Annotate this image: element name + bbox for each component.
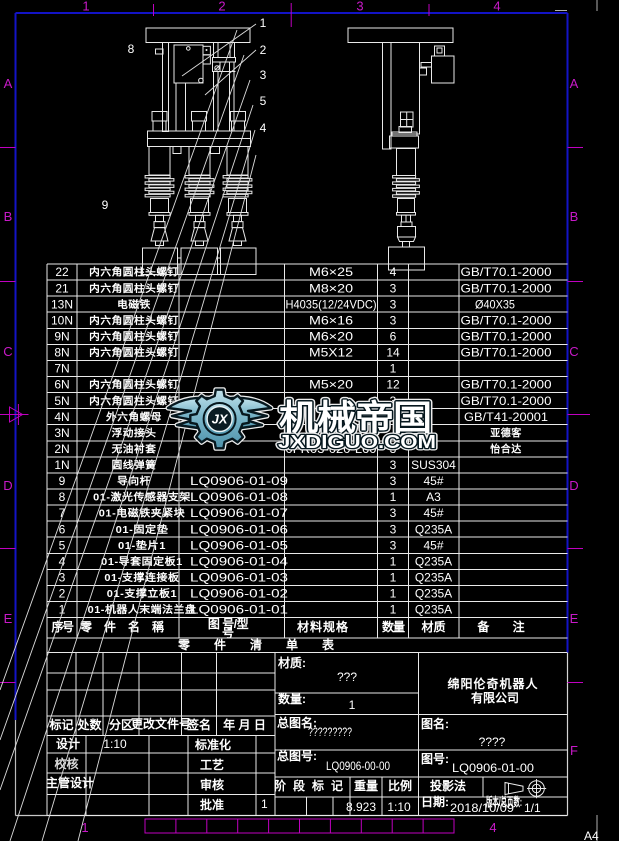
svg-text:序号: 序号	[51, 619, 74, 634]
svg-text:LQ0906-00-00: LQ0906-00-00	[326, 759, 390, 773]
svg-text:工艺: 工艺	[200, 757, 224, 772]
svg-text:浮动接头: 浮动接头	[112, 426, 157, 439]
svg-text:SUS304: SUS304	[411, 458, 456, 472]
svg-text:设计: 设计	[56, 736, 80, 751]
svg-text:D: D	[3, 478, 12, 493]
svg-text:图名:: 图名:	[421, 716, 449, 731]
svg-text:怡合达: 怡合达	[490, 443, 522, 456]
svg-text:零件名稱: 零件名稱	[79, 619, 176, 634]
svg-text:1:10: 1:10	[103, 737, 127, 751]
svg-text:B: B	[4, 209, 13, 224]
svg-text:LQ0906-01-07: LQ0906-01-07	[190, 506, 288, 520]
svg-text:45#: 45#	[423, 474, 443, 488]
svg-text:比例: 比例	[388, 778, 412, 793]
svg-text:Q235A: Q235A	[415, 522, 452, 536]
svg-text:3: 3	[260, 68, 267, 82]
svg-text:Q235A: Q235A	[415, 555, 452, 569]
svg-text:9N: 9N	[54, 330, 69, 344]
svg-text:12: 12	[386, 378, 400, 392]
svg-text:3: 3	[390, 522, 397, 536]
svg-text:4: 4	[390, 265, 397, 279]
svg-text:4: 4	[489, 820, 496, 835]
svg-text:5: 5	[260, 94, 267, 108]
svg-text:2: 2	[260, 43, 267, 57]
svg-text:2: 2	[59, 587, 66, 601]
svg-text:01-支撑连接板: 01-支撑连接板	[104, 571, 180, 584]
svg-text:13N: 13N	[51, 297, 73, 311]
svg-text:6N: 6N	[54, 378, 69, 392]
svg-text:3: 3	[390, 297, 397, 311]
svg-text:21: 21	[55, 281, 69, 295]
svg-text:1: 1	[390, 490, 397, 504]
svg-text:Ø40X35: Ø40X35	[475, 297, 515, 311]
svg-text:4: 4	[260, 121, 267, 135]
svg-text:M5×20: M5×20	[309, 378, 353, 392]
svg-text:01-机器人末端法兰盘: 01-机器人末端法兰盘	[88, 603, 197, 616]
svg-text:1: 1	[390, 362, 397, 376]
svg-text:4N: 4N	[54, 410, 69, 424]
svg-text:01-激光传感器支架: 01-激光传感器支架	[93, 491, 191, 504]
svg-text:F: F	[570, 743, 578, 758]
svg-text:01-电磁铁夹紧块: 01-电磁铁夹紧块	[99, 507, 186, 520]
svg-text:14: 14	[386, 346, 400, 360]
svg-text:2: 2	[218, 0, 225, 14]
svg-text:E: E	[570, 611, 579, 626]
svg-text:1:10: 1:10	[387, 800, 411, 814]
svg-text:M6×20: M6×20	[309, 330, 353, 344]
svg-text:3: 3	[390, 281, 397, 295]
svg-text:8: 8	[59, 490, 66, 504]
svg-text:8: 8	[128, 42, 135, 56]
svg-text:9: 9	[102, 198, 109, 212]
svg-text:M6×25: M6×25	[309, 265, 353, 279]
svg-text:1: 1	[260, 16, 267, 30]
svg-text:JX: JX	[212, 412, 229, 427]
svg-text:M5X12: M5X12	[309, 346, 353, 360]
svg-text:45#: 45#	[423, 506, 443, 520]
svg-text:GB/T70.1-2000: GB/T70.1-2000	[461, 265, 552, 279]
svg-text:LQ0906-01-02: LQ0906-01-02	[190, 587, 288, 601]
svg-text:分区: 分区	[109, 717, 133, 732]
svg-text:C: C	[3, 344, 12, 359]
svg-text:LQ0906-01-08: LQ0906-01-08	[190, 490, 288, 504]
svg-text:4: 4	[493, 0, 500, 14]
svg-text:3: 3	[390, 506, 397, 520]
svg-text:总图号:: 总图号:	[277, 748, 317, 763]
svg-text:内六角圆柱头螺钉: 内六角圆柱头螺钉	[89, 378, 179, 391]
svg-text:3: 3	[390, 313, 397, 327]
svg-text:5: 5	[59, 538, 66, 552]
svg-text:材料规格: 材料规格	[296, 619, 349, 634]
svg-text:标记: 标记	[48, 717, 73, 732]
svg-text:Q235A: Q235A	[415, 571, 452, 585]
svg-text:版本/总页数:: 版本/总页数:	[486, 794, 522, 809]
svg-text:D: D	[569, 478, 578, 493]
svg-text:LQ0906-01-04: LQ0906-01-04	[190, 555, 288, 569]
svg-text:E: E	[4, 611, 13, 626]
svg-text:????: ????	[479, 735, 506, 749]
svg-text:数量:: 数量:	[278, 691, 306, 706]
svg-text:更改文件号: 更改文件号	[131, 716, 191, 731]
svg-text:年 月 日: 年 月 日	[223, 717, 266, 732]
svg-text:8.923: 8.923	[346, 800, 376, 814]
svg-text:1: 1	[349, 698, 356, 712]
svg-text:亚德客: 亚德客	[490, 426, 522, 439]
svg-text:9: 9	[59, 474, 66, 488]
svg-text:LQ0906-01-09: LQ0906-01-09	[190, 474, 288, 488]
svg-text:LQ0906-01-00: LQ0906-01-00	[452, 761, 534, 775]
svg-text:6: 6	[390, 330, 397, 344]
svg-text:M8×20: M8×20	[309, 281, 353, 295]
svg-text:1/1: 1/1	[524, 801, 541, 815]
svg-text:A3: A3	[426, 490, 441, 504]
svg-text:内六角圆柱头螺钉: 内六角圆柱头螺钉	[89, 330, 179, 343]
svg-text:1: 1	[261, 797, 268, 811]
svg-text:重量: 重量	[354, 778, 378, 793]
svg-text:01-导套固定板1: 01-导套固定板1	[101, 555, 183, 568]
svg-text:1: 1	[390, 571, 397, 585]
svg-text:A4: A4	[584, 829, 599, 841]
svg-text:GB/T70.1-2000: GB/T70.1-2000	[461, 394, 552, 408]
svg-text:Q235A: Q235A	[415, 603, 452, 617]
svg-text:处数: 处数	[76, 717, 102, 732]
svg-text:3: 3	[390, 538, 397, 552]
svg-text:1: 1	[390, 603, 397, 617]
svg-text:Q235A: Q235A	[415, 587, 452, 601]
svg-text:01-垫片1: 01-垫片1	[118, 539, 166, 552]
svg-text:阶段标记: 阶段标记	[274, 778, 350, 793]
svg-text:无油衬套: 无油衬套	[111, 443, 157, 456]
svg-text:数量: 数量	[382, 619, 405, 634]
svg-text:有限公司: 有限公司	[471, 690, 519, 705]
svg-text:GB/T70.1-2000: GB/T70.1-2000	[461, 330, 552, 344]
svg-text:零件清单表: 零件清单表	[177, 637, 358, 652]
svg-text:1: 1	[390, 555, 397, 569]
svg-text:日期:: 日期:	[421, 794, 449, 809]
svg-text:LQ0906-01-03: LQ0906-01-03	[190, 571, 288, 585]
svg-text:GB/T70.1-2000: GB/T70.1-2000	[461, 313, 552, 327]
svg-text:GB/T70.1-2000: GB/T70.1-2000	[461, 378, 552, 392]
svg-text:H4035(12/24VDC): H4035(12/24VDC)	[286, 297, 377, 311]
svg-text:?????????: ?????????	[308, 725, 352, 739]
svg-text:签名: 签名	[186, 717, 211, 732]
svg-text:绵阳伦奇机器人: 绵阳伦奇机器人	[447, 676, 538, 691]
svg-text:M6×16: M6×16	[309, 313, 353, 327]
svg-text:投影法: 投影法	[430, 778, 466, 793]
svg-text:主管设计: 主管设计	[46, 775, 94, 790]
svg-text:材质: 材质	[420, 619, 445, 634]
svg-text:A: A	[570, 76, 579, 91]
svg-text:B: B	[570, 209, 579, 224]
svg-text:内六角圆柱头螺钉: 内六角圆柱头螺钉	[89, 346, 179, 359]
svg-text:7N: 7N	[54, 362, 69, 376]
svg-text:1: 1	[390, 587, 397, 601]
svg-text:审核: 审核	[200, 777, 224, 792]
svg-text:批准: 批准	[200, 797, 224, 812]
svg-text:3: 3	[356, 0, 363, 14]
svg-text:22: 22	[55, 265, 69, 279]
svg-text:内六角圆柱头螺钉: 内六角圆柱头螺钉	[89, 282, 179, 295]
svg-text:图号:: 图号:	[421, 751, 449, 766]
svg-text:导向杆: 导向杆	[117, 475, 151, 488]
svg-text:LQ0906-01-06: LQ0906-01-06	[190, 522, 288, 536]
svg-text:标准化: 标准化	[194, 737, 231, 752]
svg-text:LQ0906-01-01: LQ0906-01-01	[190, 603, 288, 617]
svg-text:GB/T41-20001: GB/T41-20001	[464, 410, 548, 424]
svg-text:10N: 10N	[51, 313, 73, 327]
svg-text:???: ???	[337, 670, 357, 684]
svg-text:8N: 8N	[54, 346, 69, 360]
svg-text:备 注: 备 注	[476, 619, 534, 634]
svg-text:1N: 1N	[54, 458, 69, 472]
svg-text:电磁铁: 电磁铁	[117, 298, 151, 311]
svg-text:GB/T70.1-2000: GB/T70.1-2000	[461, 281, 552, 295]
svg-text:5N: 5N	[54, 394, 69, 408]
svg-text:GB/T70.1-2000: GB/T70.1-2000	[461, 346, 552, 360]
svg-text:C: C	[569, 344, 578, 359]
svg-text:LQ0906-01-05: LQ0906-01-05	[190, 538, 288, 552]
svg-text:3: 3	[390, 458, 397, 472]
svg-text:3: 3	[390, 474, 397, 488]
svg-text:A: A	[4, 76, 13, 91]
svg-text:2N: 2N	[54, 442, 69, 456]
svg-text:材质:: 材质:	[277, 655, 306, 670]
svg-text:45#: 45#	[423, 538, 443, 552]
svg-text:1: 1	[82, 0, 89, 14]
svg-text:JXDIGUO.COM: JXDIGUO.COM	[278, 432, 436, 452]
svg-text:3N: 3N	[54, 426, 69, 440]
